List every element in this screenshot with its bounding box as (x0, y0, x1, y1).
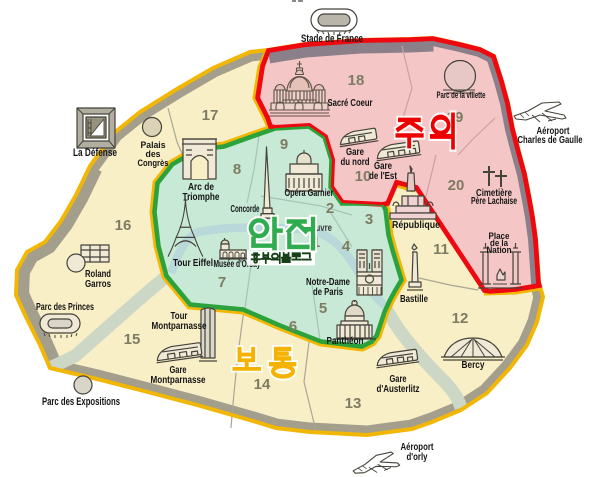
svg-text:4: 4 (342, 238, 351, 255)
svg-text:Parc des Expositions: Parc des Expositions (42, 396, 120, 408)
svg-text:Congrès: Congrès (138, 158, 169, 169)
svg-text:Montparnasse: Montparnasse (151, 375, 206, 386)
svg-text:Opéra Garnier: Opéra Garnier (285, 188, 334, 199)
svg-text:Parc des Princes: Parc des Princes (36, 302, 94, 313)
svg-text:17: 17 (202, 107, 219, 124)
svg-text:2: 2 (326, 200, 334, 217)
svg-text:Bercy: Bercy (462, 360, 485, 371)
svg-text:Bastille: Bastille (400, 294, 428, 305)
svg-text:15: 15 (124, 331, 141, 348)
svg-text:Montparnasse: Montparnasse (152, 321, 207, 332)
svg-text:12: 12 (452, 310, 469, 327)
svg-text:14: 14 (254, 376, 271, 393)
svg-text:de Paris: de Paris (313, 287, 343, 298)
svg-text:Nation: Nation (487, 245, 512, 255)
svg-text:Père Lachaise: Père Lachaise (471, 196, 517, 207)
svg-text:La Défense: La Défense (73, 147, 117, 159)
svg-text:8: 8 (233, 161, 241, 178)
svg-text:du nord: du nord (341, 157, 370, 168)
svg-text:Garros: Garros (85, 279, 111, 290)
svg-text:7: 7 (218, 274, 226, 291)
svg-text:5: 5 (319, 300, 327, 317)
svg-text:13: 13 (345, 395, 362, 412)
svg-text:Panthéon: Panthéon (327, 336, 364, 347)
svg-text:9: 9 (280, 136, 288, 153)
svg-text:de l'Est: de l'Est (369, 171, 398, 182)
svg-text:Tour Eiffel: Tour Eiffel (173, 258, 213, 269)
svg-text:d'orly: d'orly (407, 452, 428, 463)
svg-text:Concorde: Concorde (231, 204, 260, 215)
svg-text:République: République (392, 220, 440, 231)
svg-text:20: 20 (448, 177, 465, 194)
svg-text:16: 16 (115, 217, 132, 234)
svg-text:6: 6 (289, 318, 297, 335)
svg-text:Stade de France: Stade de France (301, 33, 363, 45)
svg-text:Triomphe: Triomphe (183, 192, 220, 203)
svg-text:Charles de Gaulle: Charles de Gaulle (518, 135, 583, 146)
svg-text:d'Austerlitz: d'Austerlitz (377, 384, 420, 395)
svg-text:Parc de la villette: Parc de la villette (437, 90, 486, 100)
svg-text:3: 3 (365, 211, 373, 228)
svg-text:18: 18 (348, 72, 365, 89)
svg-text:Sacré Coeur: Sacré Coeur (328, 98, 373, 109)
svg-text:11: 11 (433, 241, 449, 258)
